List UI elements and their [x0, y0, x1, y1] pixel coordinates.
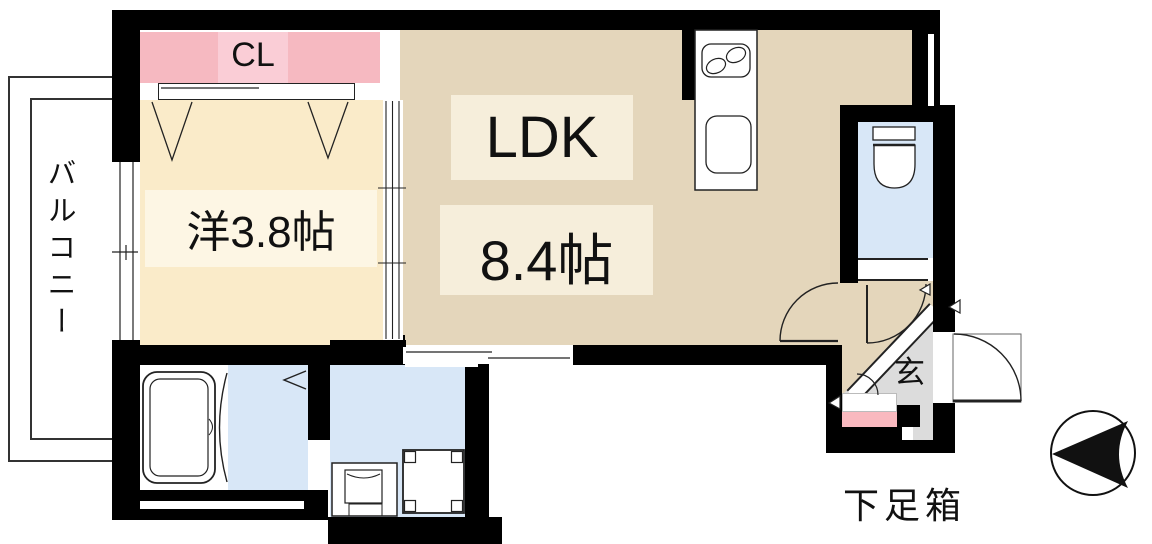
wall — [897, 405, 920, 427]
toilet-door-opening — [858, 258, 928, 281]
ldk-size-label: 8.4帖 — [440, 216, 653, 297]
wall — [112, 10, 940, 30]
wall — [465, 363, 489, 544]
wall — [933, 122, 955, 332]
wall — [826, 427, 902, 440]
wall — [682, 30, 698, 100]
shoe-box-label: 下足箱 — [843, 477, 966, 529]
east-window-slit — [928, 34, 934, 106]
shoe-box — [842, 412, 897, 427]
bathroom-tub-area — [140, 365, 228, 490]
ldk-floor — [400, 30, 840, 345]
closet-sliding-door — [158, 83, 355, 100]
wall — [840, 122, 858, 283]
wall — [833, 440, 955, 453]
balcony-label: バルコニー — [46, 158, 80, 343]
washroom-floor — [330, 365, 465, 517]
ldk-label: LDK — [451, 104, 633, 171]
wall — [573, 345, 840, 365]
compass-icon — [1051, 411, 1135, 495]
wall — [330, 340, 406, 365]
bath-vent-window — [140, 501, 304, 509]
wall — [112, 10, 140, 162]
south-window-notch — [405, 355, 478, 367]
genkan-label: 玄 — [894, 347, 925, 392]
closet-label: CL — [218, 36, 288, 75]
room-partition-sliding-door — [383, 100, 403, 340]
west-window — [113, 162, 139, 340]
toilet-room-floor — [858, 122, 933, 258]
entrance-door-swing — [953, 334, 1021, 402]
western-room-label: 洋3.8帖 — [145, 196, 377, 260]
wall — [840, 105, 955, 122]
wall — [308, 348, 330, 440]
genkan-step — [842, 393, 897, 412]
bathroom-floor — [228, 365, 308, 490]
floor-plan: バルコニー 玄 — [0, 0, 1152, 544]
